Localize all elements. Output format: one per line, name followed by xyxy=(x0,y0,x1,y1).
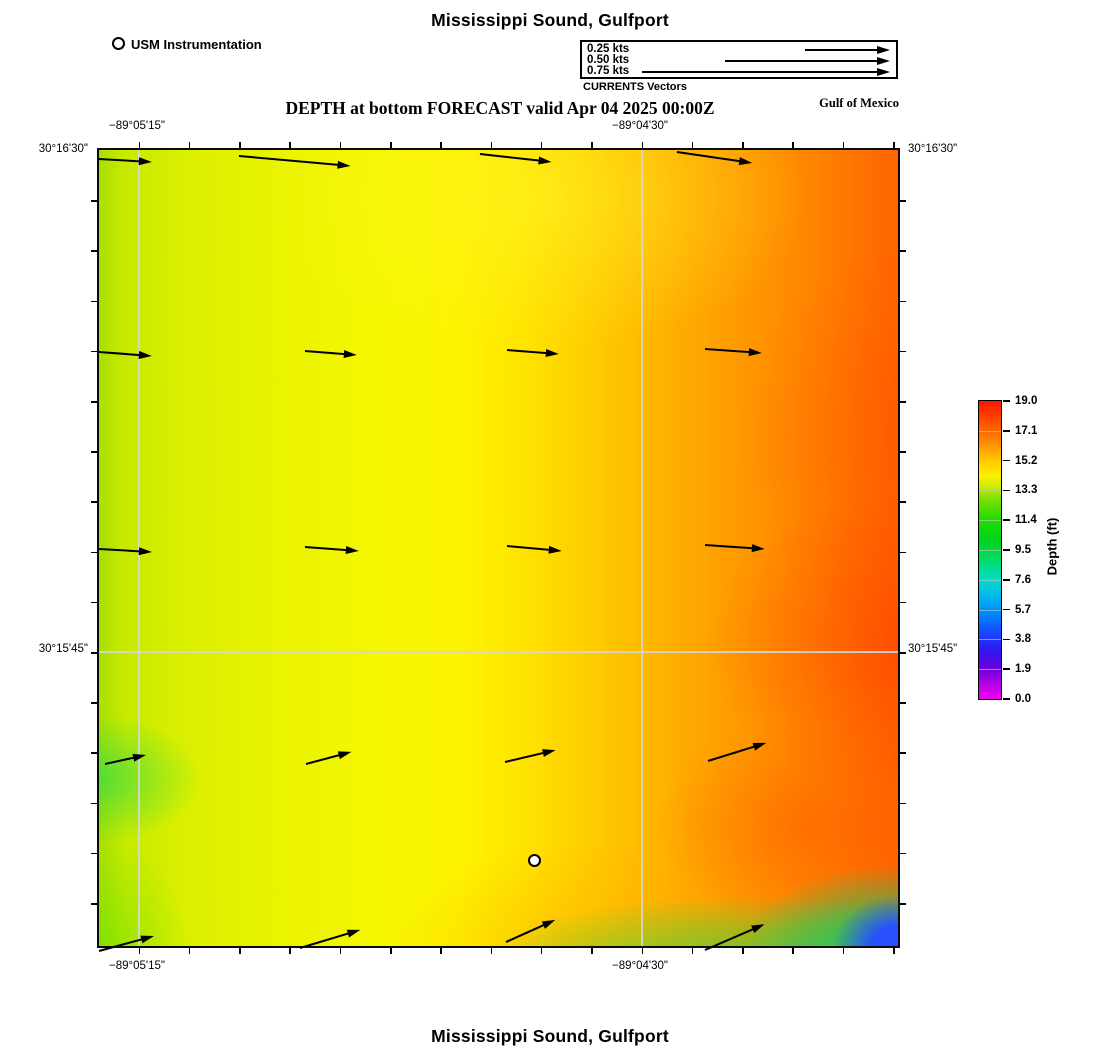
axis-tick xyxy=(340,142,342,148)
axis-tick xyxy=(900,552,906,554)
arrow-head-icon xyxy=(739,157,753,167)
colorbar-tick-label: 3.8 xyxy=(1015,633,1031,645)
scale-arrow xyxy=(642,71,878,73)
colorbar-tick-label: 13.3 xyxy=(1015,484,1037,496)
axis-tick xyxy=(239,142,241,148)
lon-label-top-1: −89°05'15" xyxy=(77,120,197,132)
axis-tick xyxy=(91,803,97,805)
arrow-head-icon xyxy=(346,546,360,555)
current-vector xyxy=(505,752,545,763)
axis-tick xyxy=(541,948,543,954)
current-vector xyxy=(705,544,753,549)
axis-tick xyxy=(900,903,906,905)
arrow-head-icon xyxy=(337,748,352,759)
axis-tick xyxy=(900,702,906,704)
colorbar-tick xyxy=(1003,490,1010,492)
colorbar-tick-label: 7.6 xyxy=(1015,574,1031,586)
current-vector xyxy=(305,546,347,551)
colorbar-tick xyxy=(1003,698,1010,700)
axis-tick xyxy=(491,142,493,148)
axis-tick xyxy=(91,351,97,353)
lon-label-bottom-1: −89°05'15" xyxy=(77,960,197,972)
colorbar-title: Depth (ft) xyxy=(1045,482,1060,612)
colorbar-tick-label: 11.4 xyxy=(1015,514,1037,526)
current-vector xyxy=(507,349,547,354)
arrow-head-icon xyxy=(877,68,890,76)
currents-legend-box: 0.25 kts 0.50 kts 0.75 kts xyxy=(580,40,898,79)
colorbar-tick xyxy=(1003,400,1010,402)
axis-tick xyxy=(491,948,493,954)
station-marker-icon xyxy=(528,854,541,867)
axis-tick xyxy=(900,200,906,202)
arrow-head-icon xyxy=(546,349,560,358)
colorbar-gridline xyxy=(979,431,1001,432)
current-vector xyxy=(480,153,540,162)
current-vector xyxy=(507,545,550,551)
axis-tick xyxy=(91,401,97,403)
axis-tick xyxy=(340,948,342,954)
colorbar-tick-label: 15.2 xyxy=(1015,455,1037,467)
axis-tick xyxy=(440,948,442,954)
current-vector xyxy=(99,548,140,552)
current-vector xyxy=(99,158,140,162)
axis-tick xyxy=(91,200,97,202)
axis-tick xyxy=(189,142,191,148)
arrow-head-icon xyxy=(752,544,766,553)
current-vector xyxy=(300,932,349,948)
axis-tick xyxy=(900,803,906,805)
colorbar-tick-label: 1.9 xyxy=(1015,663,1031,675)
axis-tick xyxy=(900,652,906,654)
colorbar-tick xyxy=(1003,430,1010,432)
colorbar-tick xyxy=(1003,579,1010,581)
axis-tick xyxy=(792,142,794,148)
axis-tick xyxy=(742,142,744,148)
arrow-head-icon xyxy=(139,547,152,556)
axis-tick xyxy=(900,401,906,403)
current-vector xyxy=(99,351,140,356)
current-vector xyxy=(239,155,339,166)
colorbar-gridline xyxy=(979,550,1001,551)
gridline-vertical xyxy=(641,150,643,946)
current-vector xyxy=(708,746,755,762)
axis-tick xyxy=(91,652,97,654)
currents-legend-caption: CURRENTS Vectors xyxy=(583,81,687,93)
axis-tick xyxy=(91,552,97,554)
axis-tick xyxy=(900,853,906,855)
axis-tick xyxy=(642,142,644,148)
axis-tick xyxy=(900,301,906,303)
colorbar-tick-label: 5.7 xyxy=(1015,604,1031,616)
axis-tick xyxy=(591,142,593,148)
lat-label-right-2: 30°15'45" xyxy=(908,643,957,655)
colorbar-tick xyxy=(1003,668,1010,670)
colorbar-gridline xyxy=(979,490,1001,491)
colorbar-tick xyxy=(1003,639,1010,641)
arrow-head-icon xyxy=(346,926,361,937)
axis-tick xyxy=(91,903,97,905)
axis-tick xyxy=(390,142,392,148)
axis-tick xyxy=(893,948,895,954)
axis-tick xyxy=(900,351,906,353)
axis-tick xyxy=(591,948,593,954)
current-vector xyxy=(305,350,345,355)
current-vector xyxy=(506,924,545,943)
axis-tick xyxy=(91,752,97,754)
axis-tick xyxy=(139,142,141,148)
arrow-head-icon xyxy=(549,545,563,554)
lon-label-bottom-2: −89°04'30" xyxy=(580,960,700,972)
axis-tick xyxy=(900,250,906,252)
station-circle-icon xyxy=(112,37,125,50)
axis-tick xyxy=(91,602,97,604)
axis-tick xyxy=(900,451,906,453)
lat-label-left-1: 30°16'30" xyxy=(0,143,88,155)
colorbar-tick-label: 9.5 xyxy=(1015,544,1031,556)
current-vector xyxy=(677,151,740,162)
axis-tick xyxy=(440,142,442,148)
axis-tick xyxy=(239,948,241,954)
axis-tick xyxy=(843,142,845,148)
current-vector xyxy=(306,754,340,765)
colorbar-gridline xyxy=(979,669,1001,670)
axis-tick xyxy=(91,702,97,704)
axis-tick xyxy=(742,948,744,954)
lon-label-top-2: −89°04'30" xyxy=(580,120,700,132)
axis-tick xyxy=(139,948,141,954)
axis-tick xyxy=(900,501,906,503)
colorbar-gridline xyxy=(979,520,1001,521)
colorbar-tick xyxy=(1003,460,1010,462)
axis-tick xyxy=(900,602,906,604)
axis-tick xyxy=(189,948,191,954)
colorbar-tick xyxy=(1003,549,1010,551)
axis-tick xyxy=(893,142,895,148)
scale-arrow xyxy=(805,49,878,51)
axis-tick xyxy=(541,142,543,148)
colorbar-tick-label: 19.0 xyxy=(1015,395,1037,407)
axis-tick xyxy=(91,301,97,303)
colorbar-tick-label: 17.1 xyxy=(1015,425,1037,437)
station-legend-label: USM Instrumentation xyxy=(131,37,262,52)
colorbar-gridline xyxy=(979,610,1001,611)
current-vector xyxy=(105,757,135,765)
arrow-head-icon xyxy=(139,351,153,360)
lat-label-left-2: 30°15'45" xyxy=(0,643,88,655)
arrow-head-icon xyxy=(749,348,763,357)
axis-tick xyxy=(289,142,291,148)
lat-label-right-1: 30°16'30" xyxy=(908,143,957,155)
axis-tick xyxy=(91,853,97,855)
current-vector xyxy=(99,938,143,952)
colorbar-gridline xyxy=(979,461,1001,462)
axis-tick xyxy=(91,501,97,503)
axis-tick xyxy=(91,250,97,252)
axis-tick xyxy=(91,451,97,453)
arrow-head-icon xyxy=(877,46,890,54)
axis-tick xyxy=(843,948,845,954)
arrow-head-icon xyxy=(752,739,767,750)
arrow-head-icon xyxy=(751,920,766,933)
axis-tick xyxy=(642,948,644,954)
colorbar-tick xyxy=(1003,609,1010,611)
arrow-head-icon xyxy=(338,160,352,169)
arrow-head-icon xyxy=(877,57,890,65)
arrow-head-icon xyxy=(344,350,358,359)
axis-tick xyxy=(900,752,906,754)
arrow-head-icon xyxy=(542,746,556,757)
colorbar-gridline xyxy=(979,580,1001,581)
current-vector xyxy=(705,348,750,353)
colorbar-gridline xyxy=(979,639,1001,640)
colorbar-tick-label: 0.0 xyxy=(1015,693,1031,705)
region-label: Gulf of Mexico xyxy=(700,96,899,111)
arrow-head-icon xyxy=(541,916,556,929)
arrow-head-icon xyxy=(140,932,155,943)
axis-tick xyxy=(289,948,291,954)
arrow-head-icon xyxy=(132,751,146,762)
map xyxy=(97,148,900,948)
current-vector xyxy=(705,928,755,951)
axis-tick xyxy=(692,142,694,148)
arrow-head-icon xyxy=(539,156,553,165)
gridline-horizontal xyxy=(99,651,898,653)
arrow-head-icon xyxy=(139,157,152,166)
axis-tick xyxy=(792,948,794,954)
colorbar-tick xyxy=(1003,519,1010,521)
colorbar: 19.017.115.213.311.49.57.65.73.81.90.0 xyxy=(978,400,1002,700)
scale-label-075: 0.75 kts xyxy=(587,66,629,77)
page-title: Mississippi Sound, Gulfport xyxy=(0,10,1100,31)
scale-arrow xyxy=(725,60,878,62)
page-root: Mississippi Sound, Gulfport USM Instrume… xyxy=(0,0,1100,1050)
bottom-title: Mississippi Sound, Gulfport xyxy=(0,1026,1100,1047)
axis-tick xyxy=(692,948,694,954)
axis-tick xyxy=(390,948,392,954)
